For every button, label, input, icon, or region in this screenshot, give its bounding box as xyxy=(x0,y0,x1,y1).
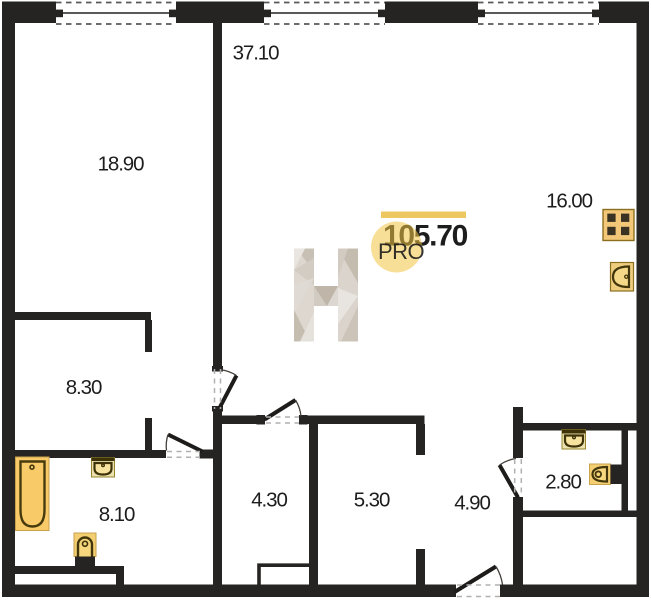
svg-text:4.30: 4.30 xyxy=(251,489,287,512)
svg-text:8.30: 8.30 xyxy=(66,376,102,399)
svg-text:5.30: 5.30 xyxy=(354,489,390,512)
svg-text:16.00: 16.00 xyxy=(546,190,592,213)
svg-text:8.10: 8.10 xyxy=(99,503,135,526)
svg-text:2.80: 2.80 xyxy=(545,471,581,494)
svg-text:PRO: PRO xyxy=(378,239,425,264)
svg-text:37.10: 37.10 xyxy=(233,42,279,65)
svg-text:4.90: 4.90 xyxy=(454,492,490,515)
svg-text:18.90: 18.90 xyxy=(98,153,144,176)
